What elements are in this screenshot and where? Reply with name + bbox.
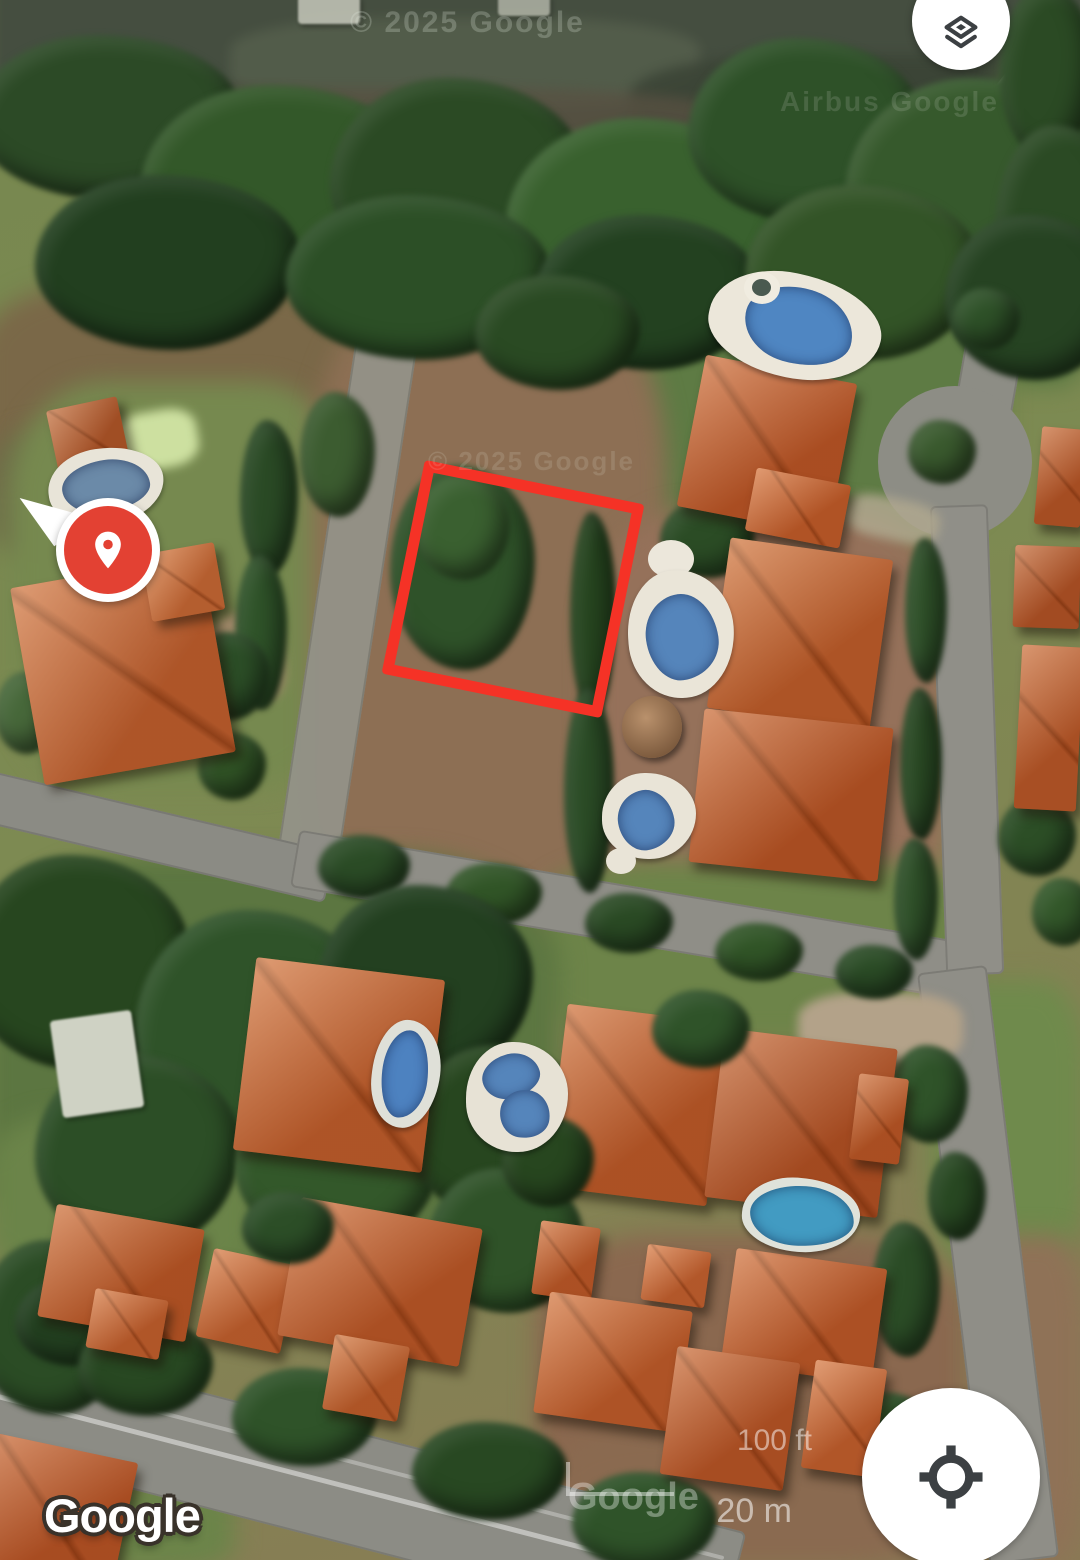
tree — [1032, 878, 1080, 946]
tree — [905, 538, 947, 683]
google-maps-satellite-view[interactable]: © 2025 Google Airbus Google © 2025 Googl… — [0, 0, 1080, 1560]
tree — [835, 945, 913, 999]
tree — [300, 392, 375, 517]
tree — [35, 175, 300, 350]
tree — [240, 420, 298, 575]
google-logo: Google — [44, 1488, 200, 1543]
scale-metric-label: 20 m — [716, 1492, 792, 1531]
tree — [652, 990, 750, 1068]
house-roof — [640, 1244, 711, 1308]
tree — [475, 275, 640, 390]
my-location-button[interactable] — [862, 1388, 1040, 1560]
house-roof — [1013, 545, 1080, 629]
location-pin-marker[interactable] — [20, 486, 170, 616]
house-roof — [1034, 426, 1080, 528]
house-roof — [707, 537, 893, 730]
palapa-hut — [622, 696, 682, 758]
house-roof — [531, 1220, 601, 1302]
house-roof — [322, 1334, 410, 1422]
layers-icon — [938, 11, 984, 57]
house-roof — [1014, 644, 1080, 811]
tree — [952, 288, 1020, 350]
tree — [894, 838, 938, 960]
highlighted-lot-outline — [382, 460, 645, 718]
place-pin-icon — [86, 528, 130, 572]
satellite-map[interactable] — [0, 0, 1080, 1560]
copyright-watermark: © 2025 Google — [350, 6, 585, 40]
imagery-watermark: Airbus Google — [780, 86, 999, 118]
ghost-google-watermark: Google — [568, 1476, 699, 1519]
house-roof — [849, 1073, 909, 1164]
house-roof — [688, 708, 893, 881]
house-roof — [85, 1288, 168, 1360]
tree — [585, 893, 673, 953]
cul-de-sac-island — [908, 420, 976, 484]
tree — [928, 1152, 986, 1240]
tree — [242, 1192, 334, 1264]
tree — [412, 1422, 567, 1520]
pin-circle — [56, 498, 160, 602]
scale-imperial-label: 100 ft — [737, 1424, 812, 1458]
pin-inner-circle — [64, 506, 152, 594]
tree — [715, 923, 803, 981]
copyright-watermark-faint: © 2025 Google — [428, 446, 635, 477]
tree — [900, 688, 942, 840]
scale-indicator: 100 ft Google 20 m — [560, 1424, 820, 1534]
white-structure — [50, 1010, 145, 1118]
crosshair-locate-icon — [908, 1434, 994, 1520]
spa — [606, 848, 636, 874]
spa-water — [752, 279, 771, 296]
